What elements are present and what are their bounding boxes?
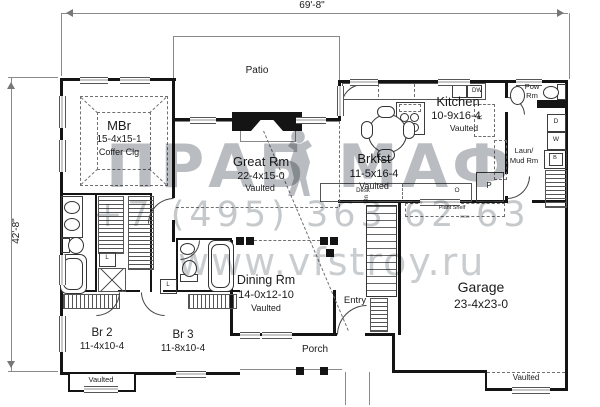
step-line (369, 372, 370, 405)
room-note-dining: Vaulted (251, 304, 281, 313)
window-marker (84, 386, 118, 393)
wall-segment (60, 78, 176, 81)
linen-label: L (105, 255, 108, 261)
dim-arrow-left (62, 9, 73, 17)
dim-ext (8, 371, 58, 372)
wall-segment (365, 333, 395, 336)
room-size-dining: 14-0x12-10 (238, 290, 294, 301)
dim-label-height: 42'-8" (12, 200, 22, 262)
window-marker (262, 332, 292, 339)
step-line (345, 372, 346, 405)
window-marker (350, 79, 378, 86)
dryer-label: D (554, 119, 559, 126)
room-label-entry: Entry (344, 296, 366, 306)
patio-outline (173, 36, 340, 122)
dim-ext (569, 13, 570, 79)
room-label-br2: Br 2 (91, 328, 112, 340)
room-label-pow: Pow (525, 83, 540, 91)
dim-line-top (62, 13, 568, 14)
sink (510, 86, 525, 105)
dim-arrow-up (7, 78, 15, 89)
dim-ext (8, 77, 58, 78)
porch-post (296, 367, 304, 375)
toilet (543, 86, 559, 99)
room-label-pow2: Rm (526, 92, 538, 100)
window-marker (80, 77, 108, 84)
window-marker (59, 140, 66, 172)
wall-segment (392, 370, 487, 373)
wall-segment (537, 100, 566, 108)
dim-arrow-right (557, 9, 568, 17)
room-size-br3: 11-8x10-4 (161, 344, 205, 354)
window-marker (120, 77, 150, 84)
window-marker (176, 371, 206, 378)
watermark-statue-icon (266, 126, 330, 203)
lockers (545, 170, 567, 208)
door-arc (337, 305, 367, 335)
window-marker (240, 332, 260, 339)
dim-ext (61, 13, 62, 76)
watermark-website: www.vfstroy.ru (178, 243, 485, 281)
sink (64, 218, 80, 231)
counter-divider (414, 84, 415, 97)
window-marker (438, 79, 470, 86)
room-note-br2: Vaulted (89, 376, 114, 384)
washer-label: W (553, 137, 559, 144)
window-marker (59, 255, 66, 285)
room-label-porch: Porch (302, 345, 328, 355)
sink (64, 201, 80, 214)
door-arc (96, 292, 120, 316)
room-size-kitchen: 10-9x16-4 (431, 111, 481, 122)
counter-divider (378, 84, 379, 97)
room-note-garage: Vaulted (513, 374, 540, 382)
floor-plan: 69'-8" 42'-8" Patio (0, 0, 600, 407)
window-marker (296, 117, 326, 124)
window-marker (337, 86, 344, 116)
wall-segment (505, 80, 508, 98)
watermark-logo-right: МАФ (338, 137, 516, 197)
bathtub-inner (63, 258, 83, 290)
dim-arrow-down (7, 361, 15, 372)
room-size-br2: 11-4x10-4 (80, 342, 124, 352)
window-marker (512, 387, 550, 394)
window-marker (190, 117, 216, 124)
wall-segment (392, 333, 395, 373)
room-label-br3: Br 3 (172, 330, 193, 342)
toilet (68, 237, 84, 254)
chair (377, 106, 395, 118)
shelf-unit (98, 268, 126, 292)
room-label-laun: Laun/ (515, 147, 534, 155)
closet-doors (188, 294, 237, 309)
room-label-patio: Patio (246, 66, 269, 76)
porch-post (320, 367, 328, 375)
bench-label: B (553, 156, 557, 162)
window-marker (59, 316, 66, 352)
room-size-garage: 23-4x23-0 (454, 298, 508, 310)
room-label-kitchen: Kitchen (436, 95, 479, 108)
room-label-mbr: MBr (107, 119, 131, 132)
entry-sidelight (370, 298, 388, 332)
door-arc (141, 292, 165, 316)
dim-label-width: 69'-8" (296, 1, 327, 11)
watermark-phone: +7 (495) 363 62-63 (93, 198, 531, 233)
window-marker (59, 96, 66, 128)
island-shelf (399, 104, 421, 112)
linen-label: L (166, 282, 169, 288)
